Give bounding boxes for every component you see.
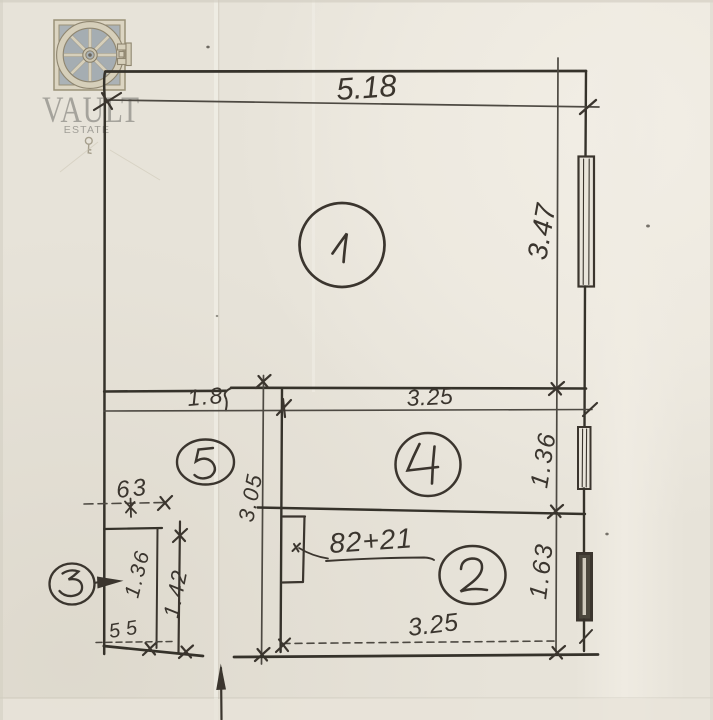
svg-text:3.25: 3.25 <box>406 383 454 411</box>
svg-text:63: 63 <box>115 474 150 504</box>
svg-text:82+21: 82+21 <box>328 522 414 559</box>
svg-text:5.18: 5.18 <box>335 68 398 107</box>
svg-text:ESTATE: ESTATE <box>64 124 110 136</box>
svg-text:1.8: 1.8 <box>186 382 225 411</box>
